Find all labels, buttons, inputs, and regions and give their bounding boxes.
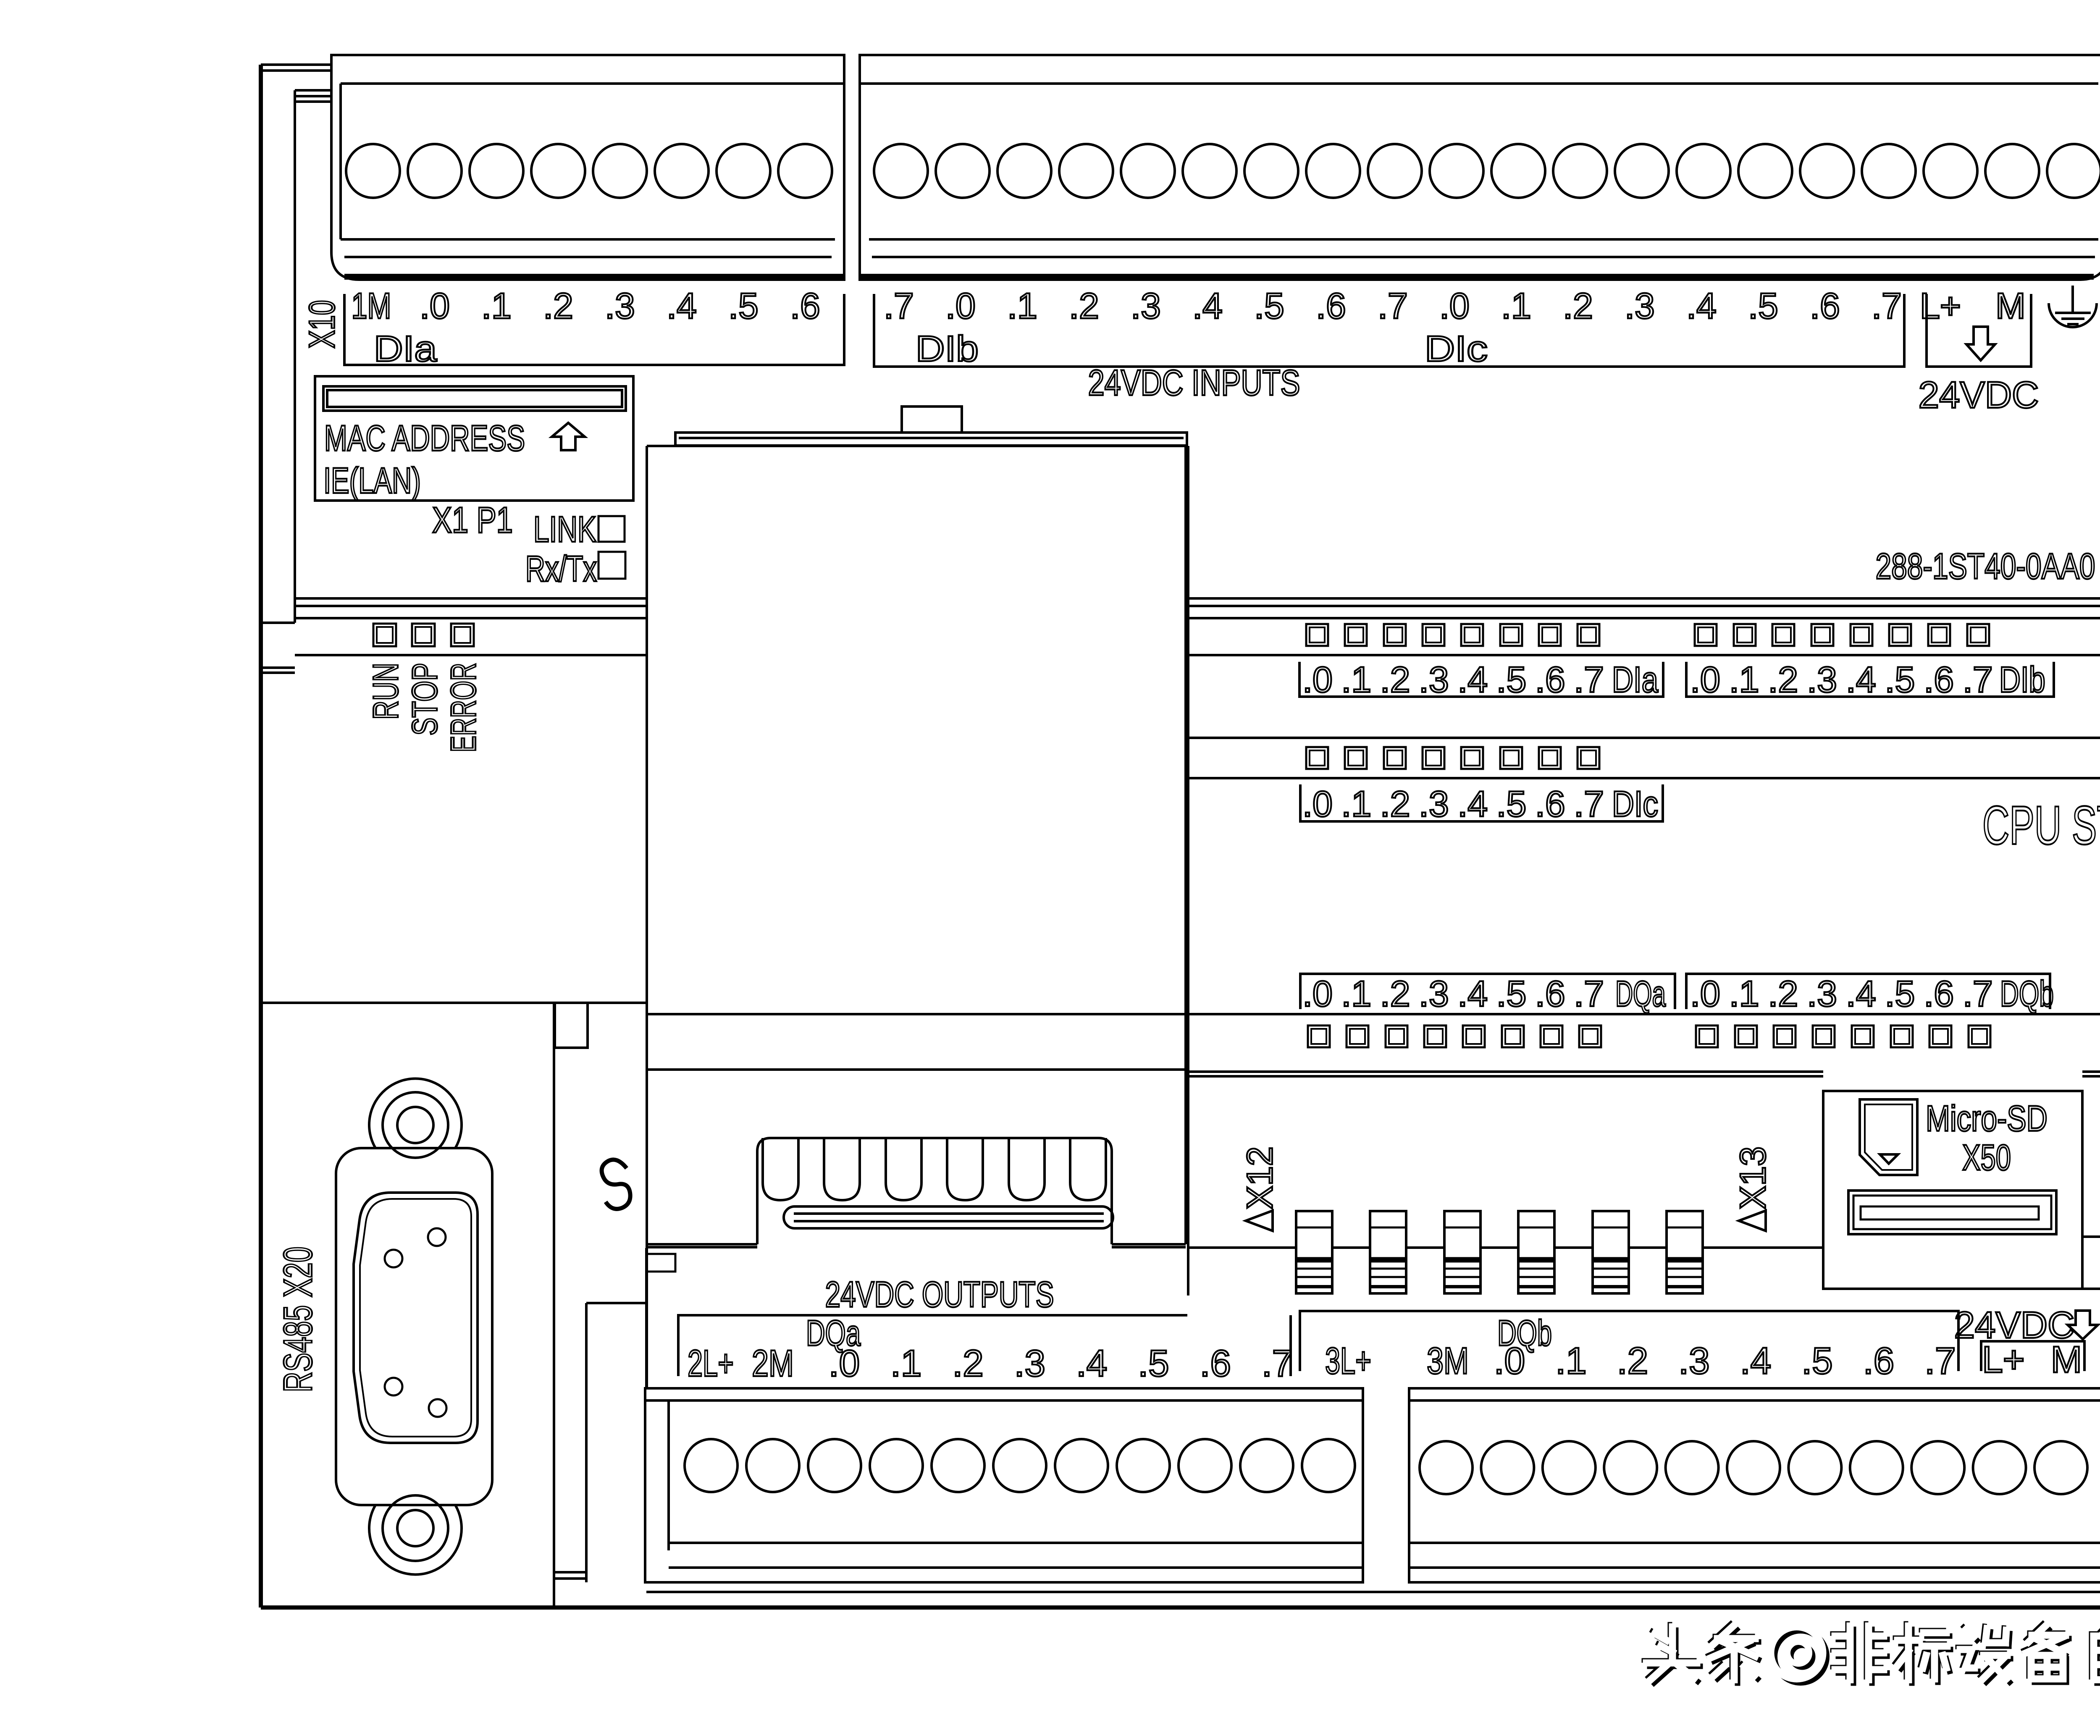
svg-text:.7: .7 <box>1378 286 1408 326</box>
svg-text:.0: .0 <box>945 286 976 326</box>
svg-text:.5: .5 <box>1496 660 1527 700</box>
svg-text:.7: .7 <box>1262 1342 1293 1384</box>
svg-text:.0: .0 <box>829 1342 860 1384</box>
svg-text:24VDC: 24VDC <box>1954 1304 2075 1346</box>
svg-text:.6: .6 <box>1200 1342 1231 1384</box>
svg-text:.3: .3 <box>1419 974 1449 1014</box>
svg-text:X50: X50 <box>1962 1138 2011 1178</box>
svg-text:24VDC INPUTS: 24VDC INPUTS <box>1088 363 1300 403</box>
svg-text:.3: .3 <box>1014 1342 1045 1384</box>
svg-text:.5: .5 <box>1138 1342 1169 1384</box>
svg-text:.1: .1 <box>1729 660 1759 700</box>
svg-text:2L+: 2L+ <box>688 1342 734 1384</box>
svg-text:.4: .4 <box>667 286 697 326</box>
svg-text:.3: .3 <box>1419 784 1449 824</box>
svg-text:.0: .0 <box>1690 660 1720 700</box>
svg-text:.1: .1 <box>1341 974 1371 1014</box>
svg-text:.6: .6 <box>1810 286 1840 326</box>
svg-text:.7: .7 <box>884 286 914 326</box>
svg-text:.3: .3 <box>1807 660 1837 700</box>
svg-text:.5: .5 <box>1885 660 1915 700</box>
svg-text:.2: .2 <box>1069 286 1099 326</box>
svg-text:DIb: DIb <box>1999 660 2045 700</box>
svg-text:.7: .7 <box>1963 660 1993 700</box>
svg-text:.5: .5 <box>1496 974 1527 1014</box>
svg-text:.2: .2 <box>1563 286 1593 326</box>
svg-text:.6: .6 <box>1535 974 1565 1014</box>
svg-text:.6: .6 <box>1924 660 1954 700</box>
svg-text:.7: .7 <box>1924 1340 1956 1382</box>
svg-text:.1: .1 <box>1007 286 1037 326</box>
svg-text:.2: .2 <box>1380 660 1410 700</box>
svg-text:288-1ST40-0AA0: 288-1ST40-0AA0 <box>1876 546 2095 587</box>
svg-text:RS485 X20: RS485 X20 <box>276 1247 320 1392</box>
svg-text:.3: .3 <box>1678 1340 1709 1382</box>
svg-text:M: M <box>1995 286 2026 326</box>
svg-text:STOP: STOP <box>405 663 444 736</box>
svg-text:.4: .4 <box>1846 974 1876 1014</box>
svg-text:.1: .1 <box>1341 784 1371 824</box>
svg-text:.7: .7 <box>1872 286 1902 326</box>
svg-text:X12: X12 <box>1240 1146 1280 1209</box>
svg-text:.2: .2 <box>543 286 573 326</box>
svg-text:LINK: LINK <box>533 509 596 550</box>
svg-text:.1: .1 <box>1341 660 1371 700</box>
svg-text:.2: .2 <box>1768 660 1798 700</box>
svg-text:.6: .6 <box>1924 974 1954 1014</box>
svg-text:.7: .7 <box>1574 974 1604 1014</box>
svg-text:.7: .7 <box>1963 974 1993 1014</box>
svg-text:.0: .0 <box>1302 660 1333 700</box>
svg-text:.3: .3 <box>1625 286 1655 326</box>
svg-text:.4: .4 <box>1846 660 1876 700</box>
svg-text:.4: .4 <box>1076 1342 1107 1384</box>
svg-text:.5: .5 <box>1885 974 1915 1014</box>
svg-text:DIa: DIa <box>374 329 437 369</box>
svg-text:.4: .4 <box>1740 1340 1771 1382</box>
svg-text:.4: .4 <box>1457 974 1488 1014</box>
svg-text:3M: 3M <box>1427 1340 1469 1382</box>
svg-text:.3: .3 <box>1131 286 1161 326</box>
svg-text:IE(LAN): IE(LAN) <box>323 461 421 501</box>
svg-text:.4: .4 <box>1457 784 1488 824</box>
svg-text:.5: .5 <box>1801 1340 1832 1382</box>
svg-text:X10: X10 <box>302 300 342 349</box>
svg-text:.5: .5 <box>1496 784 1527 824</box>
svg-text:24VDC OUTPUTS: 24VDC OUTPUTS <box>825 1274 1054 1315</box>
svg-text:.5: .5 <box>1254 286 1284 326</box>
svg-text:.6: .6 <box>1535 660 1565 700</box>
svg-text:ERROR: ERROR <box>444 663 483 753</box>
svg-text:DIc: DIc <box>1425 329 1488 369</box>
svg-text:.4: .4 <box>1686 286 1717 326</box>
svg-text:MAC ADDRESS: MAC ADDRESS <box>324 418 525 459</box>
svg-text:.5: .5 <box>728 286 759 326</box>
svg-text:24VDC: 24VDC <box>1919 374 2039 416</box>
svg-text:.1: .1 <box>1501 286 1531 326</box>
svg-text:.0: .0 <box>1302 974 1333 1014</box>
svg-text:.3: .3 <box>1807 974 1837 1014</box>
svg-text:.6: .6 <box>1863 1340 1894 1382</box>
svg-text:DQa: DQa <box>1615 974 1666 1014</box>
svg-text:.0: .0 <box>1302 784 1333 824</box>
svg-text:.2: .2 <box>1380 784 1410 824</box>
svg-text:.0: .0 <box>1439 286 1470 326</box>
svg-text:.0: .0 <box>1494 1340 1525 1382</box>
svg-text:.6: .6 <box>1316 286 1346 326</box>
svg-text:DQb: DQb <box>2000 974 2054 1014</box>
svg-text:.3: .3 <box>1419 660 1449 700</box>
svg-text:X1 P1: X1 P1 <box>432 500 513 540</box>
svg-text:X13: X13 <box>1733 1146 1773 1209</box>
svg-text:2M: 2M <box>752 1342 794 1384</box>
svg-text:.7: .7 <box>1574 660 1604 700</box>
svg-text:CPU ST40: CPU ST40 <box>1982 795 2100 856</box>
svg-text:.2: .2 <box>1768 974 1798 1014</box>
svg-text:.1: .1 <box>1729 974 1759 1014</box>
svg-text:Micro-SD: Micro-SD <box>1926 1099 2047 1139</box>
svg-text:.6: .6 <box>1535 784 1565 824</box>
svg-text:3L+: 3L+ <box>1325 1340 1371 1382</box>
svg-text:.7: .7 <box>1574 784 1604 824</box>
svg-text:1M: 1M <box>352 286 391 326</box>
svg-text:.0: .0 <box>1690 974 1720 1014</box>
svg-text:.2: .2 <box>1380 974 1410 1014</box>
svg-text:.0: .0 <box>420 286 450 326</box>
svg-text:.6: .6 <box>790 286 820 326</box>
svg-text:.4: .4 <box>1192 286 1223 326</box>
svg-text:RUN: RUN <box>366 663 405 720</box>
svg-text:Rx/Tx: Rx/Tx <box>525 549 597 589</box>
svg-text:DIb: DIb <box>916 329 979 369</box>
svg-text:.1: .1 <box>481 286 512 326</box>
svg-text:.4: .4 <box>1457 660 1488 700</box>
svg-text:.1: .1 <box>890 1342 921 1384</box>
svg-text:.5: .5 <box>1748 286 1778 326</box>
svg-text:.3: .3 <box>605 286 635 326</box>
svg-text:DIa: DIa <box>1612 660 1658 700</box>
svg-text:.2: .2 <box>1617 1340 1648 1382</box>
svg-text:.1: .1 <box>1555 1340 1586 1382</box>
svg-text:.2: .2 <box>952 1342 983 1384</box>
svg-text:DIc: DIc <box>1612 784 1658 824</box>
